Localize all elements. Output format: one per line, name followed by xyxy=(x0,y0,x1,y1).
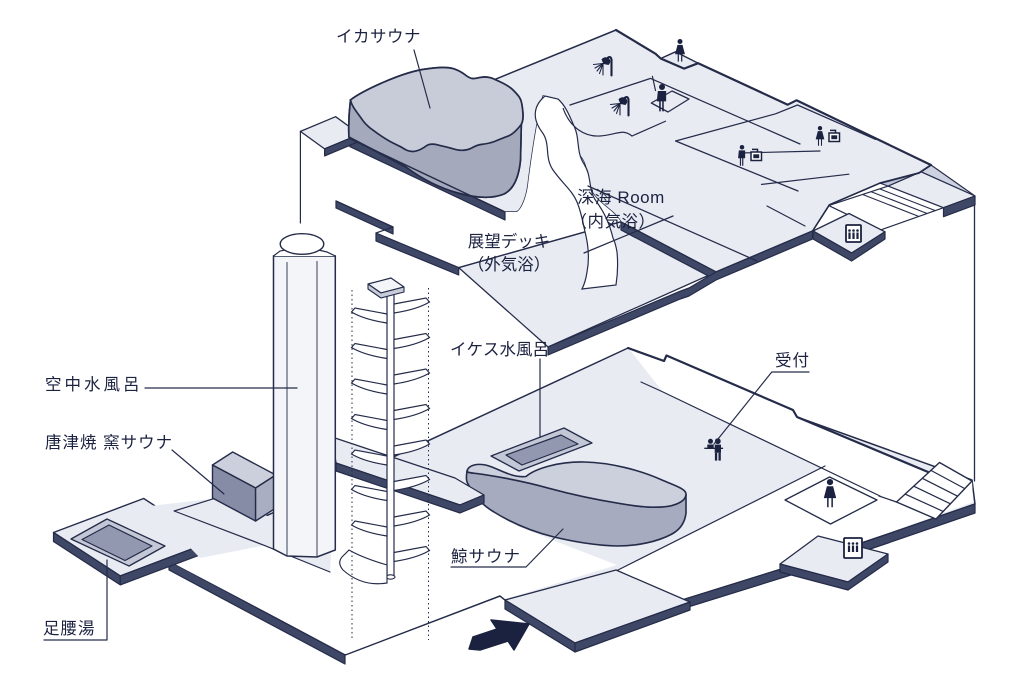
svg-text:展望デッキ: 展望デッキ xyxy=(468,231,551,251)
svg-text:イカサウナ: イカサウナ xyxy=(336,27,421,46)
svg-text:（外気浴）: （外気浴） xyxy=(468,255,551,274)
svg-text:イケス水風呂: イケス水風呂 xyxy=(450,340,549,359)
svg-text:鯨サウナ: 鯨サウナ xyxy=(451,547,521,566)
svg-text:受付: 受付 xyxy=(775,351,810,370)
svg-text:（内気浴）: （内気浴） xyxy=(571,212,656,231)
svg-text:唐津焼 窯サウナ: 唐津焼 窯サウナ xyxy=(45,433,173,452)
svg-text:空中水風呂: 空中水風呂 xyxy=(45,375,143,394)
svg-text:足腰湯: 足腰湯 xyxy=(43,619,96,638)
svg-text:深海 Room: 深海 Room xyxy=(577,188,665,207)
